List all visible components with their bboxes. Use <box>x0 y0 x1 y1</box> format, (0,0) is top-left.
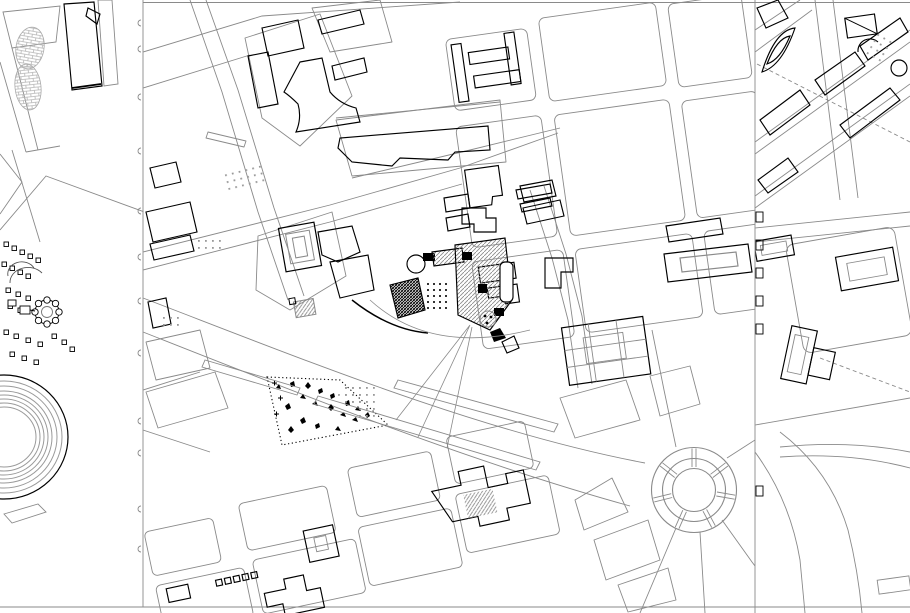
corner-black-plot <box>845 14 877 38</box>
dense-hatched-hall <box>390 278 425 318</box>
circular-plaza-roundabout <box>652 448 737 533</box>
courtyard-block <box>561 316 650 385</box>
upper-diagonal-street <box>143 2 460 52</box>
column-dot-grid <box>425 283 451 311</box>
slab-building <box>248 52 278 108</box>
zigzag-road <box>0 154 22 214</box>
white-tower <box>500 262 513 302</box>
courtyard-palace <box>276 222 329 318</box>
amphitheater-rings <box>0 375 68 499</box>
courtyard-building-3 <box>781 326 839 389</box>
tilted-black-building <box>64 2 102 90</box>
round-pavilion <box>407 255 425 273</box>
colonnade-arcs <box>8 262 42 283</box>
hatched-footprint-mound <box>13 25 48 111</box>
large-block-building <box>338 126 490 166</box>
street-median-small <box>206 132 246 147</box>
lobed-rotunda <box>8 297 62 327</box>
right-sheet <box>754 0 910 613</box>
hatched-forecourt <box>293 299 315 318</box>
tri-lobe-tower <box>284 58 360 132</box>
palace-avenue <box>143 133 558 252</box>
right-avenues <box>755 0 910 613</box>
rotunda-ensemble <box>2 242 75 365</box>
bottom-block-strip <box>138 418 565 613</box>
hook-annex <box>86 8 100 24</box>
center-sheet <box>138 0 789 613</box>
site-plan-drawing <box>0 0 910 613</box>
left-top-buildings <box>64 2 102 90</box>
cad-map-canvas <box>0 0 910 613</box>
park-curve-1 <box>780 432 862 613</box>
mid-vertical-street <box>530 190 578 388</box>
west-vertical-street <box>190 0 288 300</box>
stipple-patches <box>160 161 375 405</box>
round-plot <box>891 60 907 76</box>
wedge-islands <box>560 366 700 612</box>
plinth-parallelogram <box>4 504 46 523</box>
narrowing-road <box>780 444 910 468</box>
boulevard-south-edge <box>143 332 630 506</box>
park-curve-2 <box>755 452 805 613</box>
cross-street <box>815 0 858 200</box>
plaza-spokes <box>653 449 735 529</box>
divider-tick-marks <box>138 20 141 552</box>
plaza-fan <box>370 300 530 448</box>
stepped-buildings <box>155 458 543 613</box>
left-sheet <box>0 0 150 523</box>
courtyard-building-2 <box>835 247 898 291</box>
